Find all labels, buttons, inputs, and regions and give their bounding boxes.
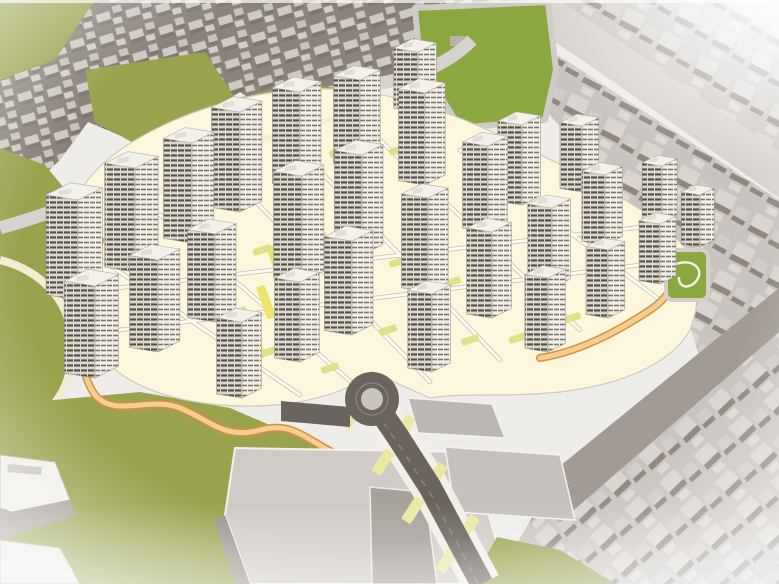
render-image	[0, 0, 779, 584]
bottom-fade	[0, 0, 779, 584]
masterplan-render-canvas	[0, 0, 779, 584]
frame-top	[0, 0, 779, 3]
